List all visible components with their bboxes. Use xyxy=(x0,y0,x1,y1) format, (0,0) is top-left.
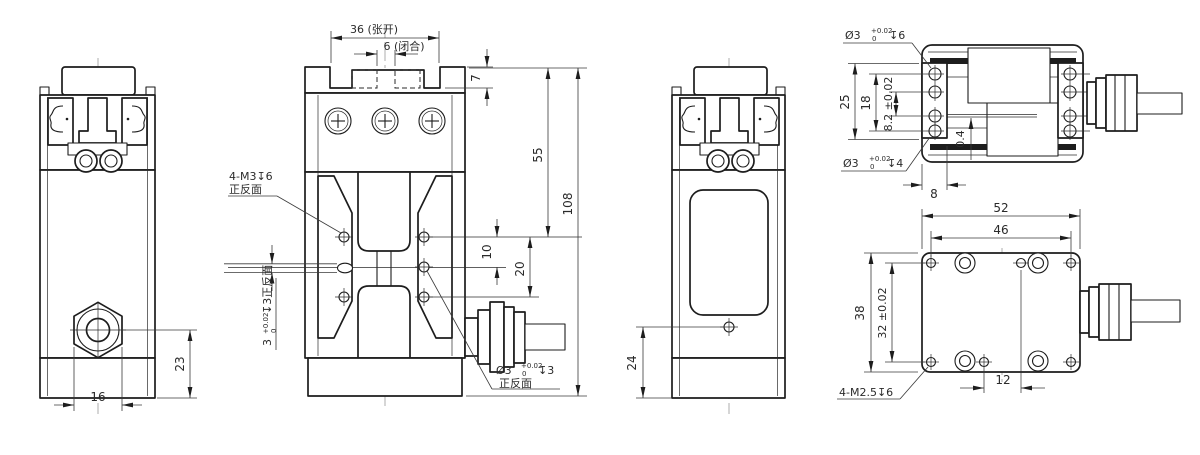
dim-10-label: 10 xyxy=(480,244,494,259)
dim-plate-7-label: 7 xyxy=(469,74,483,82)
hole4-tol-lower: 0 xyxy=(870,163,874,171)
hole6-tol-lower: 0 xyxy=(872,35,876,43)
slot-note-tol-upper: +0.02 xyxy=(262,313,270,334)
engineering-drawing-canvas: 23 16 xyxy=(0,0,1200,455)
bottom-body xyxy=(308,358,462,396)
dim-0-4-label: 0.4 xyxy=(954,130,967,148)
jaw-slider-upper xyxy=(968,48,1050,103)
cable-bottom xyxy=(1131,300,1180,322)
slot-note-tol-lower: 0 xyxy=(270,329,278,333)
connector-hump xyxy=(62,67,135,95)
thread-note-m25-label: 4-M2.5↧6 xyxy=(839,386,893,399)
bottom-view: 52 46 38 32 ±0.02 12 4-M2.5↧6 xyxy=(837,201,1180,399)
top-view: Ø3 +0.02 0 ↧6 25 18 8.2 ±0.02 0.4 xyxy=(838,27,1182,201)
dim-18-label: 18 xyxy=(859,95,873,110)
left-end-plate xyxy=(922,63,947,140)
dim-20-label: 20 xyxy=(513,261,527,276)
slot-note-suffix: ↧3正反面 xyxy=(261,265,274,314)
roller-right xyxy=(100,150,122,172)
mid-body xyxy=(305,172,465,358)
cable-top xyxy=(1137,93,1182,114)
roller-left xyxy=(75,150,97,172)
hole6-prefix: Ø3 xyxy=(845,29,861,42)
bottom-view-body xyxy=(922,253,1080,372)
slot-note-value: 3 xyxy=(261,339,274,346)
top-plate xyxy=(305,67,465,93)
dim-23-label: 23 xyxy=(173,356,187,371)
hole6-depth: ↧6 xyxy=(889,29,905,42)
front-view: 23 16 xyxy=(40,58,197,414)
dim-8-2-label: 8.2 ±0.02 xyxy=(882,77,895,132)
cable xyxy=(525,324,565,350)
dim-closed-width-label: 6 (闭合) xyxy=(383,39,424,53)
dim-108-label: 108 xyxy=(561,193,575,216)
dim-12-label: 12 xyxy=(995,373,1010,387)
side-view: 24 xyxy=(625,58,785,414)
hole4-depth: ↧4 xyxy=(887,157,903,170)
dim-38 xyxy=(864,253,918,372)
hole-note-d6: Ø3 +0.02 0 ↧6 xyxy=(843,27,931,68)
dim-55-label: 55 xyxy=(531,147,545,162)
cable-gland-top xyxy=(1087,75,1182,131)
dim-24-label: 24 xyxy=(625,355,639,370)
hole-note-depth: ↧3 xyxy=(538,364,554,377)
dim-open-width-label: 36 (张开) xyxy=(350,23,398,36)
cover-screws xyxy=(325,108,445,134)
hole-note-d4: Ø3 +0.02 0 ↧4 xyxy=(841,137,930,171)
hole-note-prefix: Ø3 xyxy=(496,364,512,377)
gripper-drawing: 23 16 xyxy=(0,0,1200,455)
cable-gland xyxy=(465,302,565,372)
dim-18 xyxy=(869,74,926,131)
dim-8-label: 8 xyxy=(930,187,938,201)
dim-32-label: 32 ±0.02 xyxy=(876,287,889,338)
connector-hump-side xyxy=(694,67,767,95)
hole-note-line2: 正反面 xyxy=(499,377,532,390)
dim-16-label: 16 xyxy=(90,390,105,404)
dowel-slot xyxy=(338,263,353,273)
dim-52-label: 52 xyxy=(993,201,1008,215)
dim-46-label: 46 xyxy=(993,223,1008,237)
jaw-slider-lower xyxy=(987,103,1058,156)
thread-note-m3-line1: 4-M3↧6 xyxy=(229,170,273,183)
dim-25-label: 25 xyxy=(838,94,852,109)
dim-32 xyxy=(885,263,925,362)
hole4-prefix: Ø3 xyxy=(843,157,859,170)
cable-gland-bottom xyxy=(1080,284,1180,340)
dim-38-label: 38 xyxy=(853,305,867,320)
main-front-view: 36 (张开) 6 (闭合) 7 55 108 10 xyxy=(224,23,587,410)
thread-note-m3-line2: 正反面 xyxy=(229,183,262,196)
right-end-plate xyxy=(1058,63,1090,140)
